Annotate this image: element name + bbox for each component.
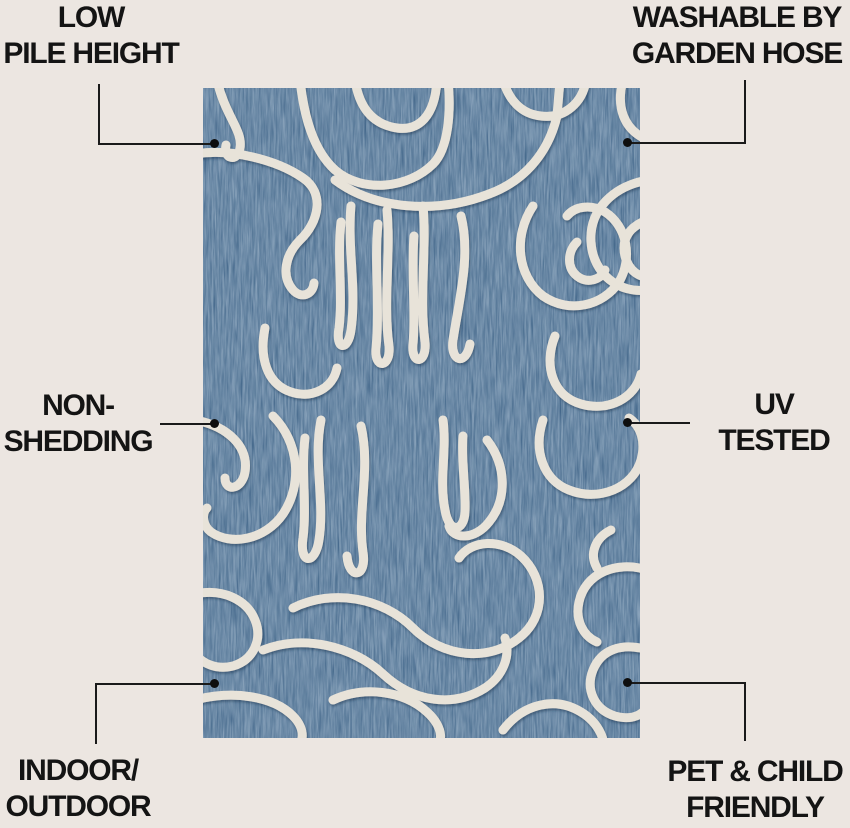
feature-label-line: NON- <box>0 388 158 424</box>
connector-indoor-outdoor-vertical <box>95 684 97 744</box>
feature-label-uv-tested: UV TESTED <box>654 387 850 459</box>
feature-label-pet-child-friendly: PET & CHILD FRIENDLY <box>630 754 850 826</box>
feature-label-line: TESTED <box>654 423 850 459</box>
rug-pattern-svg <box>203 88 640 738</box>
connector-low-pile-vertical <box>98 84 100 145</box>
connector-low-pile-horizontal <box>98 143 217 145</box>
connector-non-shedding-dot <box>210 419 219 428</box>
connector-indoor-outdoor-dot <box>210 679 219 688</box>
feature-label-line: OUTDOOR <box>0 789 158 825</box>
feature-label-line: INDOOR/ <box>0 753 158 789</box>
connector-non-shedding-horizontal <box>160 423 217 425</box>
connector-washable-vertical <box>744 80 746 144</box>
connector-low-pile-dot <box>210 139 219 148</box>
feature-label-line: FRIENDLY <box>630 790 850 826</box>
connector-pet-child-dot <box>623 678 632 687</box>
connector-indoor-outdoor-horizontal <box>95 683 217 685</box>
feature-label-low-pile-height: LOW PILE HEIGHT <box>2 0 180 72</box>
connector-pet-child-vertical <box>744 683 746 741</box>
feature-label-indoor-outdoor: INDOOR/ OUTDOOR <box>0 753 158 825</box>
feature-label-line: LOW <box>2 0 180 36</box>
connector-washable-horizontal <box>628 142 746 144</box>
feature-label-line: UV <box>654 387 850 423</box>
connector-uv-tested-dot <box>623 418 632 427</box>
feature-label-line: WASHABLE BY <box>607 0 850 36</box>
feature-label-non-shedding: NON- SHEDDING <box>0 388 158 460</box>
feature-label-line: GARDEN HOSE <box>607 36 850 72</box>
feature-label-washable: WASHABLE BY GARDEN HOSE <box>607 0 850 72</box>
feature-label-line: PET & CHILD <box>630 754 850 790</box>
connector-pet-child-horizontal <box>628 682 746 684</box>
feature-label-line: SHEDDING <box>0 424 158 460</box>
rug-photo <box>203 88 640 738</box>
infographic-canvas: LOW PILE HEIGHT WASHABLE BY GARDEN HOSE … <box>0 0 850 828</box>
connector-washable-dot <box>623 138 632 147</box>
feature-label-line: PILE HEIGHT <box>2 36 180 72</box>
